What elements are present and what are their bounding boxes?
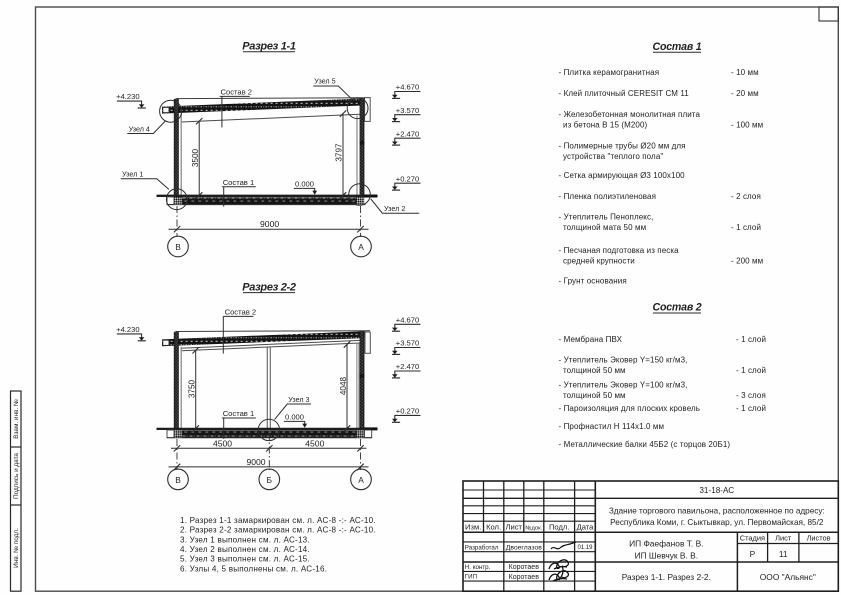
svg-text:из бетона В 15 (М200): из бетона В 15 (М200) xyxy=(563,121,648,130)
svg-text:Подл.: Подл. xyxy=(549,523,570,532)
svg-text:- Полимерные трубы Ø20 мм для: - Полимерные трубы Ø20 мм для xyxy=(559,142,686,151)
svg-text:4. Узел 2 выполнен см. л. АС-1: 4. Узел 2 выполнен см. л. АС-14. xyxy=(180,545,310,554)
svg-text:Изм.: Изм. xyxy=(465,523,481,532)
svg-text:6. Узлы 4, 5 выполнены см. л.: 6. Узлы 4, 5 выполнены см. л. АС-16. xyxy=(180,564,327,573)
svg-text:4048: 4048 xyxy=(339,376,348,395)
svg-text:- 1 слой: - 1 слой xyxy=(731,223,761,232)
svg-text:Коротаев: Коротаев xyxy=(509,574,540,581)
svg-text:+4.670: +4.670 xyxy=(396,315,419,324)
svg-text:- 20 мм: - 20 мм xyxy=(731,89,759,98)
svg-text:3. Узел 1 выполнен см. л. АС-1: 3. Узел 1 выполнен см. л. АС-13. xyxy=(180,535,310,544)
svg-text:Состав 1: Состав 1 xyxy=(223,178,255,187)
svg-text:Б: Б xyxy=(267,475,273,485)
svg-text:- 1 слой: - 1 слой xyxy=(736,404,766,413)
svg-text:Двоеглазов: Двоеглазов xyxy=(506,544,543,551)
svg-text:- 1 слой: - 1 слой xyxy=(736,335,766,344)
svg-text:Взам. инв. №: Взам. инв. № xyxy=(13,399,20,439)
svg-text:9000: 9000 xyxy=(260,219,279,229)
svg-text:0.000: 0.000 xyxy=(295,179,314,188)
svg-text:- Пароизоляция для плоских кро: - Пароизоляция для плоских кровель xyxy=(559,404,701,413)
svg-text:- 3 слоя: - 3 слоя xyxy=(736,391,766,400)
svg-text:- Утеплитель Эковер Y=100 кг/м: - Утеплитель Эковер Y=100 кг/м3, xyxy=(559,381,688,390)
svg-text:- Утеплитель Эковер Y=150 кг/м: - Утеплитель Эковер Y=150 кг/м3, xyxy=(559,355,688,364)
svg-text:Лист: Лист xyxy=(775,534,792,543)
svg-text:Узел 3: Узел 3 xyxy=(288,395,309,404)
svg-text:Состав 2: Состав 2 xyxy=(653,302,702,314)
svg-text:Узел 4: Узел 4 xyxy=(129,124,150,133)
svg-text:- 100 мм: - 100 мм xyxy=(731,121,763,130)
svg-text:0.000: 0.000 xyxy=(285,412,304,421)
svg-text:ГИП: ГИП xyxy=(465,574,477,581)
svg-text:+3.570: +3.570 xyxy=(396,339,419,348)
svg-text:3797: 3797 xyxy=(335,143,344,162)
svg-text:- Пленка полиэтиленовая: - Пленка полиэтиленовая xyxy=(559,192,657,201)
svg-text:+0.270: +0.270 xyxy=(396,407,419,416)
svg-text:+4.230: +4.230 xyxy=(116,325,139,334)
svg-text:ИП Шевчук В. В.: ИП Шевчук В. В. xyxy=(635,551,698,561)
svg-text:Узел 2: Узел 2 xyxy=(384,204,405,213)
svg-text:+0.270: +0.270 xyxy=(396,174,419,183)
svg-text:1. Разрез 1-1 замаркирован см.: 1. Разрез 1-1 замаркирован см. л. АС-8 -… xyxy=(180,516,376,525)
svg-text:толщиной мата 50 мм: толщиной мата 50 мм xyxy=(563,223,646,232)
svg-text:- Грунт основания: - Грунт основания xyxy=(559,277,627,286)
svg-text:Состав 2: Состав 2 xyxy=(221,87,253,96)
svg-text:Здание торгового павильона, ра: Здание торгового павильона, расположенно… xyxy=(609,506,825,515)
svg-text:А: А xyxy=(358,475,364,485)
svg-text:средней крупности: средней крупности xyxy=(563,256,635,265)
svg-text:Состав 1: Состав 1 xyxy=(223,409,255,418)
svg-text:Инв. № подл.: Инв. № подл. xyxy=(13,528,20,568)
svg-text:- 1 слой: - 1 слой xyxy=(736,366,766,375)
svg-text:4500: 4500 xyxy=(305,439,324,449)
svg-text:Подпись и дата: Подпись и дата xyxy=(13,453,20,499)
svg-text:Стадия: Стадия xyxy=(740,534,765,543)
svg-text:- 10 мм: - 10 мм xyxy=(731,68,759,77)
svg-text:- Мембрана ПВХ: - Мембрана ПВХ xyxy=(559,335,623,344)
svg-text:- Металлические балки 45Б2 (с: - Металлические балки 45Б2 (с торцов 20Б… xyxy=(559,440,731,449)
svg-text:+4.230: +4.230 xyxy=(116,92,139,101)
svg-text:31-18-АС: 31-18-АС xyxy=(699,486,734,495)
svg-text:+2.470: +2.470 xyxy=(396,362,419,371)
svg-text:01.19: 01.19 xyxy=(577,545,593,551)
svg-text:3500: 3500 xyxy=(191,148,200,167)
svg-text:- Сетка армирующая Ø3 100х100: - Сетка армирующая Ø3 100х100 xyxy=(559,171,686,180)
svg-text:Лист: Лист xyxy=(506,523,523,532)
svg-text:ООО "Альянс": ООО "Альянс" xyxy=(760,572,816,582)
svg-text:3750: 3750 xyxy=(187,379,196,398)
svg-text:Узел 1: Узел 1 xyxy=(122,170,143,179)
svg-text:+2.470: +2.470 xyxy=(396,129,419,138)
svg-text:№док.: №док. xyxy=(525,526,542,532)
svg-text:Состав 1: Состав 1 xyxy=(653,41,702,53)
svg-text:Н. контр.: Н. контр. xyxy=(465,564,491,571)
svg-text:В: В xyxy=(175,475,181,485)
svg-text:Коротаев: Коротаев xyxy=(509,564,540,571)
svg-text:- Плитка керамогранитная: - Плитка керамогранитная xyxy=(559,68,660,77)
svg-text:Дата: Дата xyxy=(577,523,595,532)
svg-text:толщиной 50 мм: толщиной 50 мм xyxy=(563,366,626,375)
svg-text:- 2 слоя: - 2 слоя xyxy=(731,192,761,201)
svg-text:Разрез 2-2: Разрез 2-2 xyxy=(242,281,296,293)
svg-text:Разрез 1-1: Разрез 1-1 xyxy=(242,41,296,53)
svg-text:5. Узел 3 выполнен см. л. АС-1: 5. Узел 3 выполнен см. л. АС-15. xyxy=(180,555,310,564)
svg-text:Разработал: Разработал xyxy=(465,544,499,551)
svg-text:11: 11 xyxy=(779,549,788,559)
svg-text:В: В xyxy=(175,242,181,252)
svg-text:Кол.: Кол. xyxy=(486,523,501,532)
svg-text:9000: 9000 xyxy=(246,457,265,467)
svg-text:- Профнастил Н 114х1.0 мм: - Профнастил Н 114х1.0 мм xyxy=(559,422,665,431)
svg-text:- Песчаная подготовка из песка: - Песчаная подготовка из песка xyxy=(559,246,680,255)
svg-text:толщиной 50 мм: толщиной 50 мм xyxy=(563,391,626,400)
svg-text:- 200 мм: - 200 мм xyxy=(731,256,763,265)
svg-text:Р: Р xyxy=(750,549,756,559)
svg-text:4500: 4500 xyxy=(213,439,232,449)
svg-text:Разрез 1-1. Разрез 2-2.: Разрез 1-1. Разрез 2-2. xyxy=(622,572,711,582)
svg-text:+4.670: +4.670 xyxy=(396,83,419,92)
svg-text:- Клей плиточный CERESIT СМ 11: - Клей плиточный CERESIT СМ 11 xyxy=(559,89,690,98)
svg-text:2. Разрез 2-2 замаркирован см.: 2. Разрез 2-2 замаркирован см. л. АС-8 -… xyxy=(180,526,376,535)
svg-text:А: А xyxy=(358,242,364,252)
svg-text:+3.570: +3.570 xyxy=(396,106,419,115)
svg-text:Республика Коми, г. Сыктывкар,: Республика Коми, г. Сыктывкар, ул. Перво… xyxy=(610,518,824,527)
svg-text:ИП Фаефанов Т. В.: ИП Фаефанов Т. В. xyxy=(629,539,703,549)
svg-text:- Утеплитель Пеноплекс,: - Утеплитель Пеноплекс, xyxy=(559,213,654,222)
svg-text:Состав 2: Состав 2 xyxy=(225,307,257,316)
svg-text:Листов: Листов xyxy=(807,534,831,543)
svg-text:устройства "теплого пола": устройства "теплого пола" xyxy=(563,152,663,161)
svg-text:- Железобетонная монолитная п: - Железобетонная монолитная плита xyxy=(559,110,701,119)
svg-text:Узел 5: Узел 5 xyxy=(314,77,335,86)
